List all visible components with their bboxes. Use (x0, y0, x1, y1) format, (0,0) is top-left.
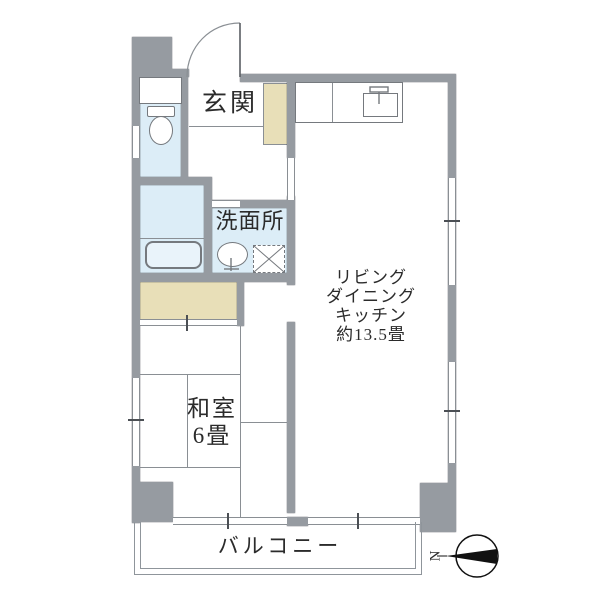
compass-north-label: N (428, 551, 445, 562)
ldk-label-line: ダイニング (326, 287, 416, 306)
washitsu-label-line: 和室 (187, 395, 237, 422)
washitsu-label: 和室 6畳 (187, 395, 237, 449)
balcony-label: バルコニー (218, 535, 343, 559)
ldk-label-line: キッチン (326, 306, 416, 325)
ldk-label-line: 約13.5畳 (326, 325, 416, 344)
ldk-label: リビング ダイニング キッチン 約13.5畳 (326, 268, 416, 344)
washitsu-label-line: 6畳 (187, 422, 237, 449)
ldk-label-line: リビング (326, 268, 416, 287)
labels-layer: 玄関 洗面所 リビング ダイニング キッチン 約13.5畳 和室 6畳 バルコニ… (0, 0, 600, 600)
floor-plan: 玄関 洗面所 リビング ダイニング キッチン 約13.5畳 和室 6畳 バルコニ… (0, 0, 600, 600)
genkan-label: 玄関 (202, 90, 258, 118)
washroom-label: 洗面所 (215, 210, 284, 235)
